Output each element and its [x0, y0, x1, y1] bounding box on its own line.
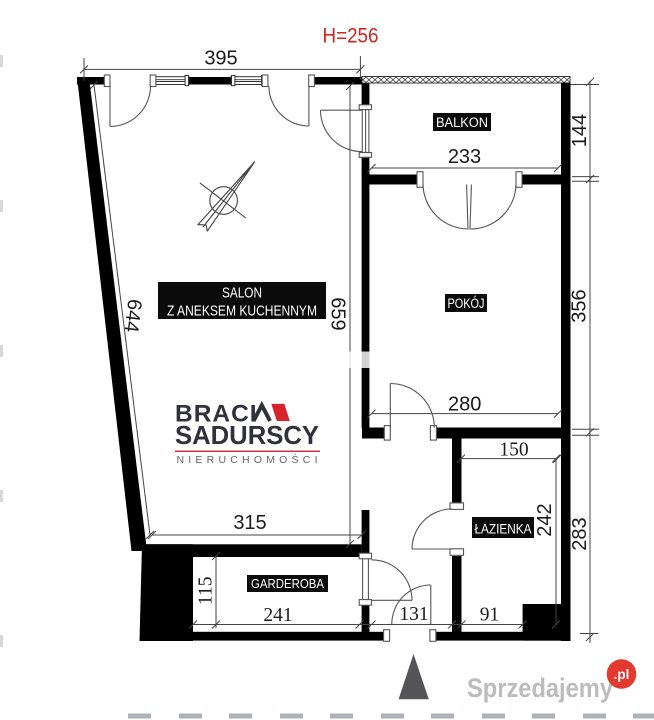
svg-text:395: 395: [204, 48, 237, 70]
svg-text:H=256: H=256: [323, 24, 379, 48]
svg-text:280: 280: [448, 394, 481, 416]
svg-text:.pl: .pl: [614, 667, 630, 682]
svg-text:115: 115: [196, 577, 217, 606]
svg-text:144: 144: [569, 114, 591, 147]
svg-text:150: 150: [499, 440, 528, 461]
svg-text:659: 659: [327, 297, 349, 330]
svg-text:Z ANEKSEM KUCHENNYM: Z ANEKSEM KUCHENNYM: [167, 303, 317, 320]
svg-text:SALON: SALON: [222, 285, 262, 302]
svg-text:ŁAZIENKA: ŁAZIENKA: [475, 522, 532, 537]
svg-text:91: 91: [480, 605, 500, 626]
svg-text:Sprzedajemy: Sprzedajemy: [467, 673, 613, 703]
svg-text:BALKON: BALKON: [436, 115, 488, 130]
svg-text:242: 242: [534, 503, 556, 536]
svg-text:GARDEROBA: GARDEROBA: [251, 577, 325, 591]
svg-text:131: 131: [399, 604, 428, 625]
svg-text:NIERUCHOMOŚCI: NIERUCHOMOŚCI: [177, 453, 318, 466]
svg-text:POKÓJ: POKÓJ: [448, 296, 485, 311]
svg-text:356: 356: [569, 289, 591, 322]
svg-text:283: 283: [569, 517, 591, 550]
svg-text:315: 315: [233, 512, 266, 534]
svg-text:233: 233: [448, 146, 481, 168]
svg-text:SADURSCY: SADURSCY: [175, 420, 319, 450]
svg-text:241: 241: [263, 605, 292, 626]
svg-text:644: 644: [120, 298, 146, 334]
